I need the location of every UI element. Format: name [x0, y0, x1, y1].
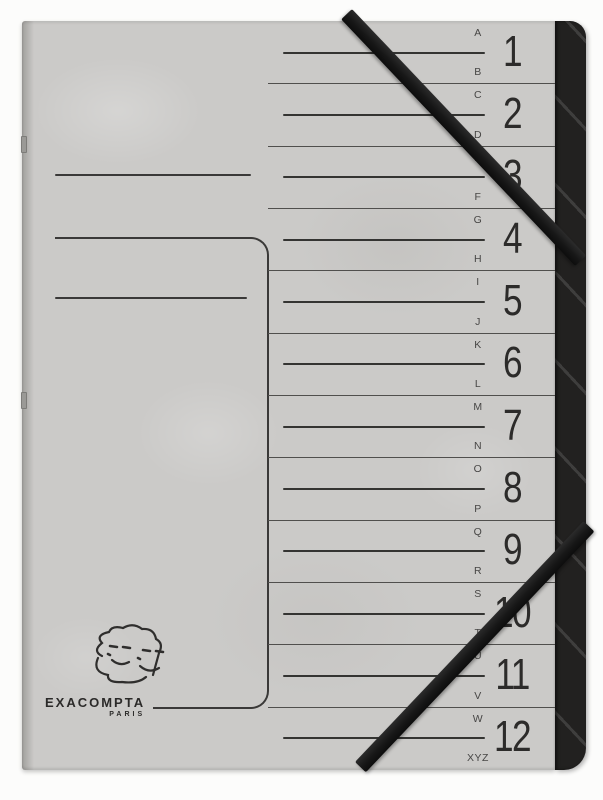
tab-writing-line — [283, 550, 485, 552]
brand-name: EXACOMPTA — [45, 696, 145, 710]
cover-writing-line-1 — [55, 174, 251, 176]
tab-writing-line — [283, 426, 485, 428]
back-cover-black-edge — [555, 21, 586, 770]
tab-section-5: I J 5 — [268, 271, 555, 333]
tab-writing-line — [283, 176, 485, 178]
tab-number: 11 — [486, 653, 537, 697]
product-photo: EXACOMPTA PARIS A B 1 C D 2 E F 3 — [0, 0, 603, 800]
tab-number: 9 — [486, 528, 537, 572]
brand-city: PARIS — [45, 711, 145, 718]
spine-staple-top — [21, 136, 27, 153]
tab-number: 2 — [486, 92, 537, 136]
tab-section-8: O P 8 — [268, 458, 555, 520]
tab-section-11: U V 11 — [268, 645, 555, 707]
tab-writing-line — [283, 488, 485, 490]
tab-number: 5 — [486, 279, 537, 323]
tab-section-6: K L 6 — [268, 334, 555, 396]
tab-writing-line — [283, 363, 485, 365]
tab-number: 8 — [486, 466, 537, 510]
tab-number: 7 — [486, 404, 537, 448]
tab-section-9: Q R 9 — [268, 521, 555, 583]
spine-staple-bottom — [21, 392, 27, 409]
index-folder: EXACOMPTA PARIS A B 1 C D 2 E F 3 — [22, 21, 585, 770]
tab-number: 1 — [486, 30, 537, 74]
tab-writing-line — [283, 301, 485, 303]
cover-writing-line-2 — [55, 297, 247, 299]
tab-writing-line — [283, 114, 485, 116]
tab-section-7: M N 7 — [268, 396, 555, 458]
tab-writing-line — [283, 613, 485, 615]
exacompta-two-heads-logo-icon — [80, 624, 192, 694]
tab-section-4: G H 4 — [268, 209, 555, 271]
brand-block: EXACOMPTA PARIS — [45, 693, 153, 719]
tab-writing-line — [283, 239, 485, 241]
tab-number: 6 — [486, 341, 537, 385]
tab-number: 4 — [486, 217, 537, 261]
tab-number: 12 — [486, 715, 537, 759]
index-tab-area: A B 1 C D 2 E F 3 G H 4 — [268, 22, 555, 769]
